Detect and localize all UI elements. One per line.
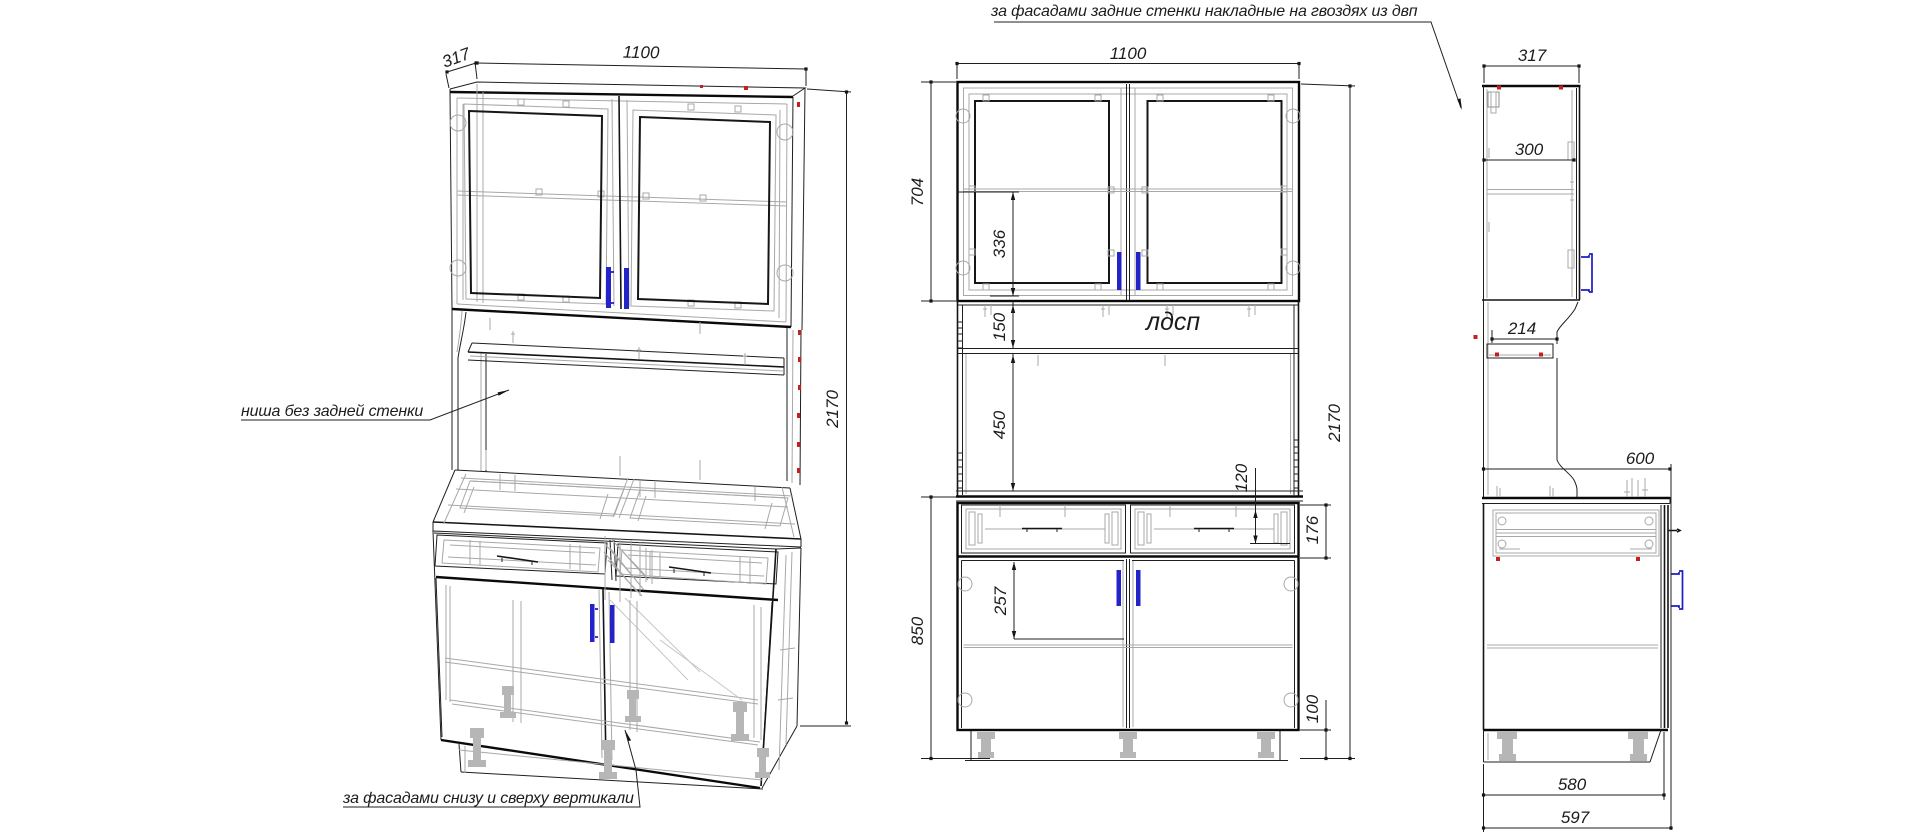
svg-text:214: 214 <box>1507 319 1536 338</box>
svg-text:ниша без задней стенки: ниша без задней стенки <box>241 403 423 420</box>
svg-text:120: 120 <box>1232 463 1251 492</box>
svg-text:317: 317 <box>1518 46 1547 65</box>
svg-text:100: 100 <box>1303 694 1322 723</box>
svg-text:176: 176 <box>1303 515 1322 544</box>
svg-text:2170: 2170 <box>1325 404 1344 443</box>
svg-text:за фасадами задние стенки накл: за фасадами задние стенки накладные на г… <box>990 3 1418 20</box>
svg-text:за фасадами снизу и сверху вер: за фасадами снизу и сверху вертикали <box>342 790 634 807</box>
svg-text:2170: 2170 <box>823 390 842 429</box>
svg-text:336: 336 <box>990 229 1009 258</box>
svg-text:850: 850 <box>908 616 927 645</box>
svg-text:лдсп: лдсп <box>1144 308 1200 336</box>
svg-text:597: 597 <box>1561 808 1590 827</box>
svg-text:1100: 1100 <box>623 43 660 63</box>
svg-text:580: 580 <box>1558 775 1587 794</box>
svg-text:600: 600 <box>1626 449 1655 468</box>
svg-text:257: 257 <box>991 586 1010 616</box>
svg-text:300: 300 <box>1515 140 1544 159</box>
svg-text:1100: 1100 <box>1110 44 1147 63</box>
svg-text:150: 150 <box>990 312 1009 341</box>
svg-text:704: 704 <box>908 178 927 206</box>
svg-text:450: 450 <box>990 410 1009 439</box>
